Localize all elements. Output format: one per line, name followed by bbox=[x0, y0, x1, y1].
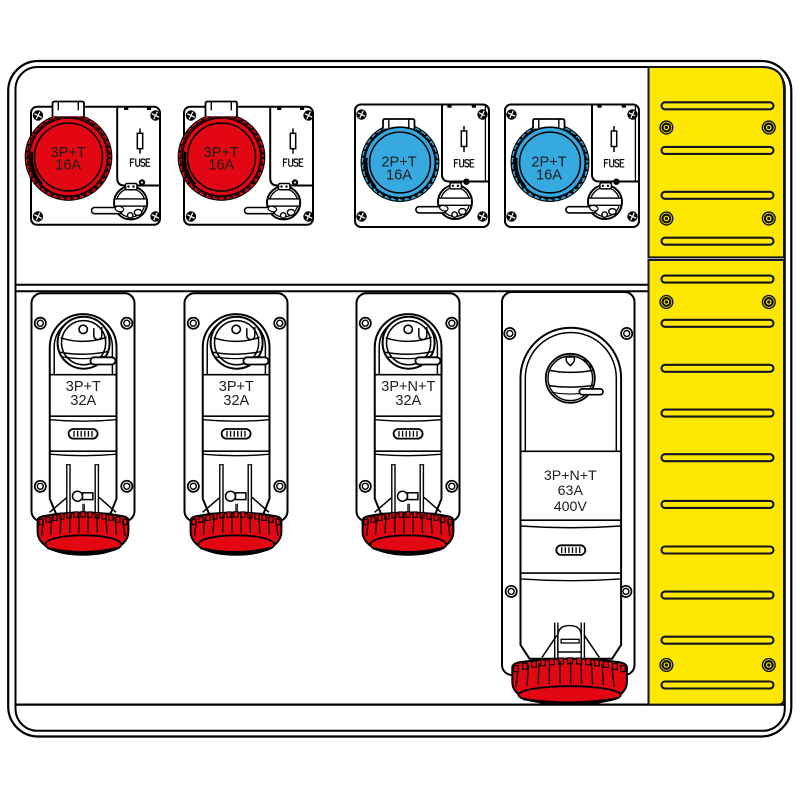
svg-text:32A: 32A bbox=[395, 393, 421, 409]
svg-text:63A: 63A bbox=[558, 483, 584, 499]
svg-text:400V: 400V bbox=[554, 499, 588, 515]
svg-text:16A: 16A bbox=[536, 168, 562, 184]
svg-text:16A: 16A bbox=[55, 158, 81, 174]
svg-text:32A: 32A bbox=[70, 393, 96, 409]
svg-text:3P+N+T: 3P+N+T bbox=[544, 468, 597, 484]
svg-text:32A: 32A bbox=[223, 393, 249, 409]
svg-text:16A: 16A bbox=[386, 168, 412, 184]
svg-text:16A: 16A bbox=[208, 158, 234, 174]
